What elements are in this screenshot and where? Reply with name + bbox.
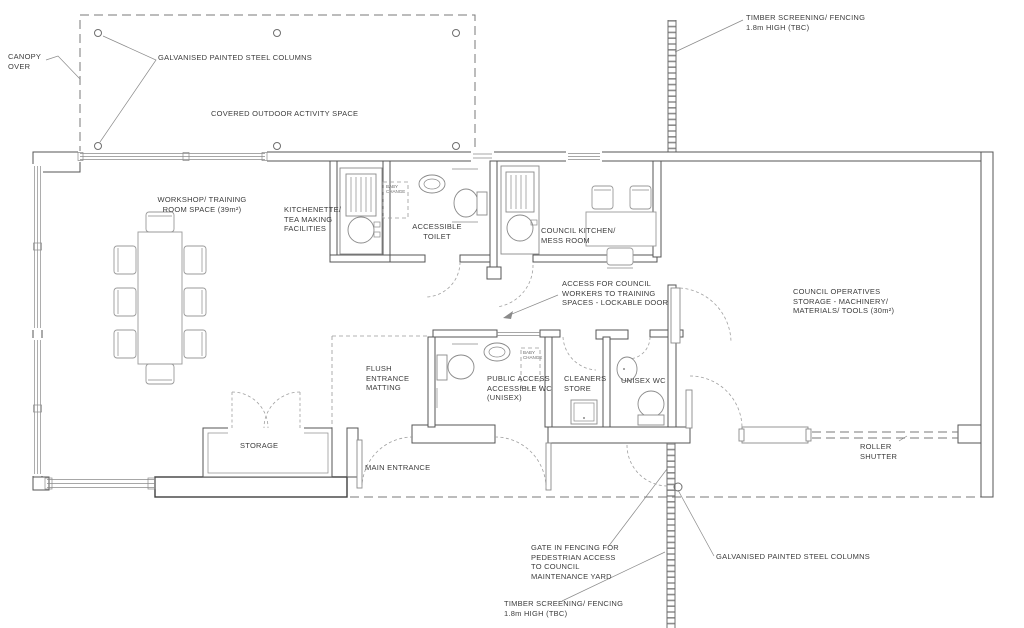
label-cleaners-store: CLEANERS STORE [564, 374, 606, 393]
workshop-table [138, 232, 182, 364]
label-covered-outdoor: COVERED OUTDOOR ACTIVITY SPACE [211, 109, 358, 119]
unisex-wc-fixtures [617, 357, 664, 425]
storage-door-swing [264, 392, 300, 428]
toilet-bowl [638, 391, 664, 417]
label-baby-change-1: BABY CHANGE [386, 184, 405, 195]
chair [146, 364, 174, 384]
mess-south-wall [533, 255, 657, 262]
roller-box [742, 427, 808, 443]
label-public-wc: PUBLIC ACCESS ACCESSIBLE WC (UNISEX) [487, 374, 552, 403]
storage-door-swing [232, 392, 268, 428]
label-galvanised-bottom: GALVANISED PAINTED STEEL COLUMNS [716, 552, 870, 562]
label-workshop: WORKSHOP/ TRAINING ROOM SPACE (39m²) [152, 195, 252, 214]
steel-column-marker [95, 143, 102, 150]
north-corridor-door [471, 151, 494, 162]
chair [146, 212, 174, 232]
chair [184, 330, 206, 358]
west-window-1 [32, 164, 43, 330]
toilet-west-wall [383, 161, 390, 262]
label-storage: STORAGE [240, 441, 278, 451]
mop-sink [571, 400, 597, 424]
storage-access-leaf [671, 288, 680, 343]
timber-fence-south [627, 443, 682, 628]
chair [184, 288, 206, 316]
corridor-wall-cap [487, 267, 501, 279]
steel-column-marker [274, 30, 281, 37]
toilet-base [638, 415, 664, 425]
toilet-door-swing [425, 262, 460, 297]
label-unisex-wc: UNISEX WC [621, 376, 666, 386]
timber-fence-north [668, 20, 676, 152]
floor-plan-canvas: CANOPY OVER GALVANISED PAINTED STEEL COL… [0, 0, 1024, 628]
label-baby-change-2: BABY CHANGE [523, 350, 542, 361]
label-council-kitchen: COUNCIL KITCHEN/ MESS ROOM [541, 226, 616, 245]
storage-access-swing [680, 288, 731, 343]
label-kitchenette: KITCHENETTE/ TEA MAKING FACILITIES [284, 205, 341, 234]
chair [630, 186, 651, 209]
entrance-pier-centre [412, 425, 495, 443]
east-wall [981, 152, 993, 497]
label-council-storage: COUNCIL OPERATIVES STORAGE - MACHINERY/ … [793, 287, 894, 316]
label-gate-fencing: GATE IN FENCING FOR PEDESTRIAN ACCESS TO… [531, 543, 619, 581]
unisex-door-swing [628, 337, 650, 359]
kitchenette-sink-unit [340, 168, 382, 254]
basin [419, 175, 445, 193]
chair [607, 248, 633, 265]
gate-leader [608, 469, 667, 547]
toilet-south-wall-2 [390, 255, 425, 262]
cistern [477, 192, 487, 215]
label-galvanised-top: GALVANISED PAINTED STEEL COLUMNS [158, 53, 312, 63]
drainer [506, 172, 534, 212]
label-canopy-over: CANOPY OVER [8, 52, 41, 71]
steel-column-marker [453, 30, 460, 37]
sink-bowl [348, 217, 374, 243]
label-roller-shutter: ROLLER SHUTTER [860, 442, 897, 461]
gate-swing [627, 445, 668, 486]
toilet-bowl [448, 355, 474, 379]
label-access-door: ACCESS FOR COUNCIL WORKERS TO TRAINING S… [562, 279, 668, 308]
south-wall-workshop [155, 477, 347, 497]
wc-block-north-wall-c [596, 330, 628, 339]
public-wc-west-wall [428, 337, 435, 427]
sw-corner [33, 477, 49, 490]
entrance-pier-left [347, 428, 358, 477]
fence-north-leader [675, 20, 743, 52]
label-timber-fence-south: TIMBER SCREENING/ FENCING 1.8m HIGH (TBC… [504, 599, 623, 618]
south-window-workshop [45, 478, 155, 489]
label-timber-fence-north: TIMBER SCREENING/ FENCING 1.8m HIGH (TBC… [746, 13, 865, 32]
label-flush-matting: FLUSH ENTRANCE MATTING [366, 364, 409, 393]
north-window-2 [566, 151, 602, 162]
yard-door-swing [690, 376, 742, 428]
sink-bowl [507, 215, 533, 241]
mess-sink-unit [501, 166, 539, 254]
south-wall-wc-block [548, 427, 690, 443]
cleaners-door-swing [563, 337, 596, 370]
accessible-toilet-fixtures [383, 169, 487, 222]
lockable-door-swing [497, 265, 533, 307]
north-window-1 [78, 151, 267, 162]
south-door-leaf [546, 443, 551, 490]
roller-shutter-group [739, 427, 958, 443]
chair [114, 288, 136, 316]
cleaners-fixtures [571, 400, 597, 424]
corridor-west-wall [490, 161, 497, 269]
workshop-table-group [114, 212, 206, 384]
main-entrance-leaf [357, 440, 362, 488]
label-accessible-toilet: ACCESSIBLE TOILET [410, 222, 464, 241]
roller-end [806, 429, 811, 441]
basin [484, 343, 510, 361]
label-main-entrance: MAIN ENTRANCE [365, 463, 430, 473]
columns-top-leader [100, 36, 156, 142]
chair [114, 246, 136, 274]
south-door-swing [495, 437, 546, 488]
steel-column-marker [95, 30, 102, 37]
yard-door-leaf [686, 390, 692, 428]
wc-block-north-wall-a [433, 330, 497, 337]
canopy-outline [80, 15, 475, 152]
wc-block-north-wall-b [540, 330, 560, 337]
chair [184, 246, 206, 274]
west-window-2 [32, 338, 43, 476]
roller-jamb-east [958, 425, 981, 443]
access-arrow [503, 295, 558, 319]
chair [114, 330, 136, 358]
steel-column-marker [453, 143, 460, 150]
cistern [437, 355, 447, 380]
chair [592, 186, 613, 209]
canopy-dashed-rect [80, 15, 475, 152]
kitchenette-south-wall [330, 255, 390, 262]
arrowhead [503, 311, 513, 319]
toilet-bowl [454, 189, 478, 217]
canopy-leader [46, 56, 80, 79]
storage-room [203, 392, 332, 477]
roller-end [739, 429, 744, 441]
columns-bottom-leader [678, 490, 714, 556]
steel-column-marker [274, 143, 281, 150]
